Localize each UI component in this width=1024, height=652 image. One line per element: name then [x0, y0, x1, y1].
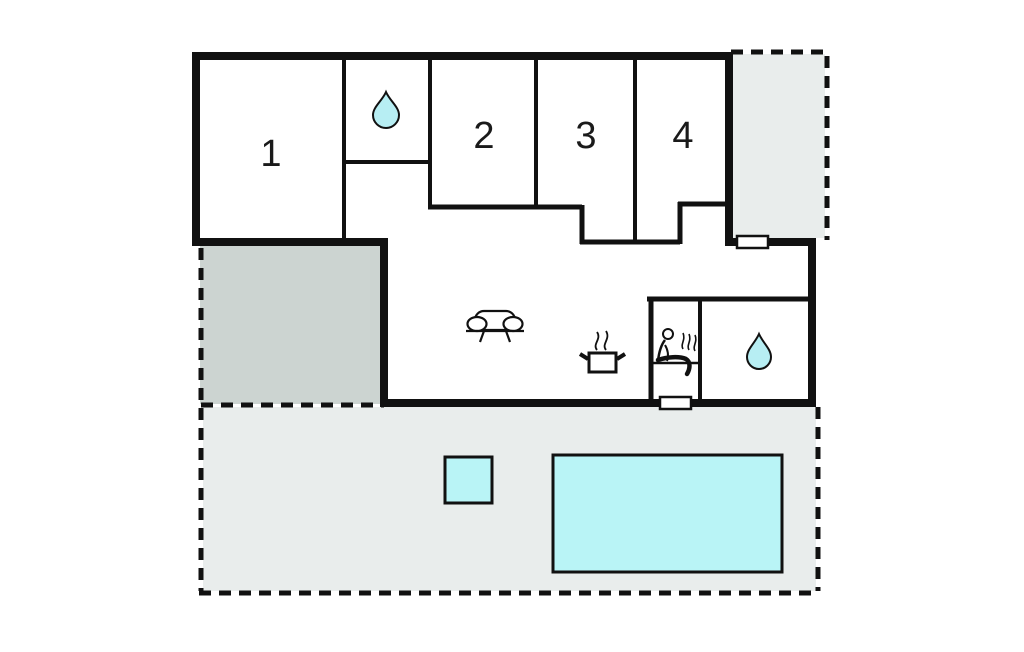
room-2-label: 2 [473, 115, 494, 157]
sofa-armrest-right [504, 317, 523, 331]
room-4-label: 4 [672, 115, 693, 157]
covered-patio [200, 246, 380, 404]
room-1-label: 1 [260, 133, 281, 175]
pot-body [589, 353, 616, 372]
terrace-top-right-fill [733, 54, 825, 238]
hot-tub [445, 457, 492, 503]
floor-plan: 1 2 3 4 [0, 0, 1024, 652]
door-symbol [660, 397, 691, 409]
swimming-pool [553, 455, 782, 572]
window-symbol [737, 236, 768, 248]
room-3-label: 3 [575, 115, 596, 157]
sauna-person-head [663, 329, 673, 339]
sofa-armrest-left [468, 317, 487, 331]
covered-patio-fill [200, 246, 380, 404]
terrace-top-right [731, 52, 827, 240]
